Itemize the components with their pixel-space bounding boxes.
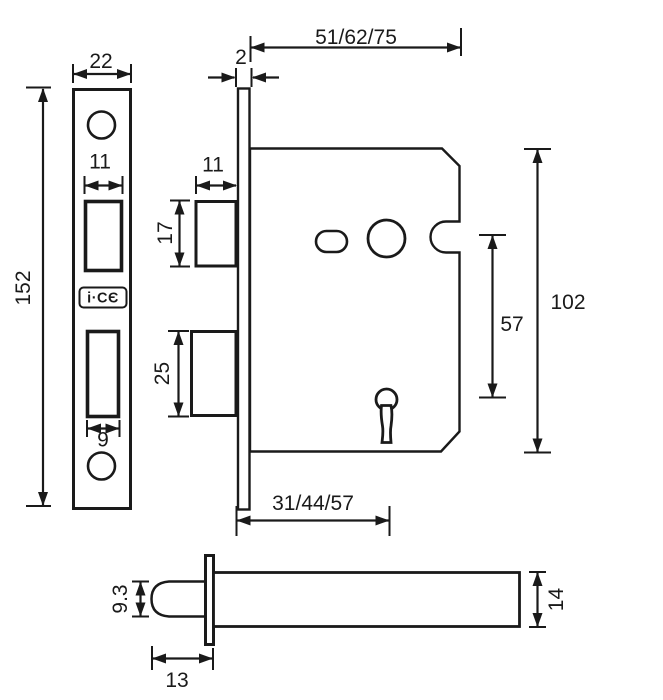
dim-label: 57 xyxy=(500,313,523,336)
dim-label: 22 xyxy=(89,50,112,73)
latchbolt-nose xyxy=(152,582,207,617)
dim-label: 11 xyxy=(89,151,111,174)
dim-label: 14 xyxy=(545,588,568,612)
latchbolt-bar xyxy=(214,573,520,627)
dim-label: 17 xyxy=(154,221,177,244)
lock-dimension-drawing: i·CЄ 22 152 11 9 xyxy=(0,0,663,700)
dim-label: 25 xyxy=(151,362,174,385)
dim-deadbolt-cutout-width: 9 xyxy=(87,420,120,452)
dim-label: 152 xyxy=(12,270,35,305)
dim-label: 102 xyxy=(550,291,585,314)
dim-nose-length: 13 xyxy=(152,646,213,692)
dim-plate-width: 22 xyxy=(73,50,131,83)
dim-label: 11 xyxy=(202,154,224,177)
keyhole-stem xyxy=(381,406,392,443)
dim-backset-options: 31/44/57 xyxy=(237,492,390,536)
dim-case-height: 102 xyxy=(524,149,586,453)
faceplate-edge-profile xyxy=(238,89,250,510)
dim-label: 13 xyxy=(165,669,188,692)
dim-latch-cutout-width: 11 xyxy=(85,151,123,195)
screw-hole-bottom xyxy=(88,453,115,480)
dim-follower-to-keyhole: 57 xyxy=(479,235,524,398)
dim-label: 2 xyxy=(235,46,247,69)
dim-label: 9 xyxy=(97,429,109,452)
lock-case-side-view: 2 51/62/75 11 17 25 xyxy=(151,26,586,536)
brand-logo-text: i·CЄ xyxy=(87,291,119,307)
screw-hole-top xyxy=(88,112,115,139)
dim-latch-height: 17 xyxy=(154,201,190,267)
dim-latch-width: 11 xyxy=(196,154,236,195)
faceplate-front-view: i·CЄ 22 152 11 9 xyxy=(12,50,131,509)
deadbolt xyxy=(192,332,237,416)
dim-label: 31/44/57 xyxy=(272,492,354,515)
lock-case-outline xyxy=(250,149,460,452)
deadbolt-cutout xyxy=(88,332,119,417)
dim-label: 51/62/75 xyxy=(315,26,397,49)
dim-faceplate-thickness: 2 xyxy=(208,46,279,87)
dim-plate-height: 152 xyxy=(12,88,51,507)
dim-label: 9.3 xyxy=(109,584,132,613)
latch-cutout xyxy=(86,202,122,271)
dim-bar-height: 14 xyxy=(529,572,568,627)
latch-bolt xyxy=(196,202,236,267)
dim-case-depth-options: 51/62/75 xyxy=(251,26,462,62)
dim-deadbolt-height: 25 xyxy=(151,331,189,417)
dim-bolt-height: 9.3 xyxy=(109,582,149,617)
latchbolt-detail-view: 9.3 13 14 xyxy=(109,556,568,693)
